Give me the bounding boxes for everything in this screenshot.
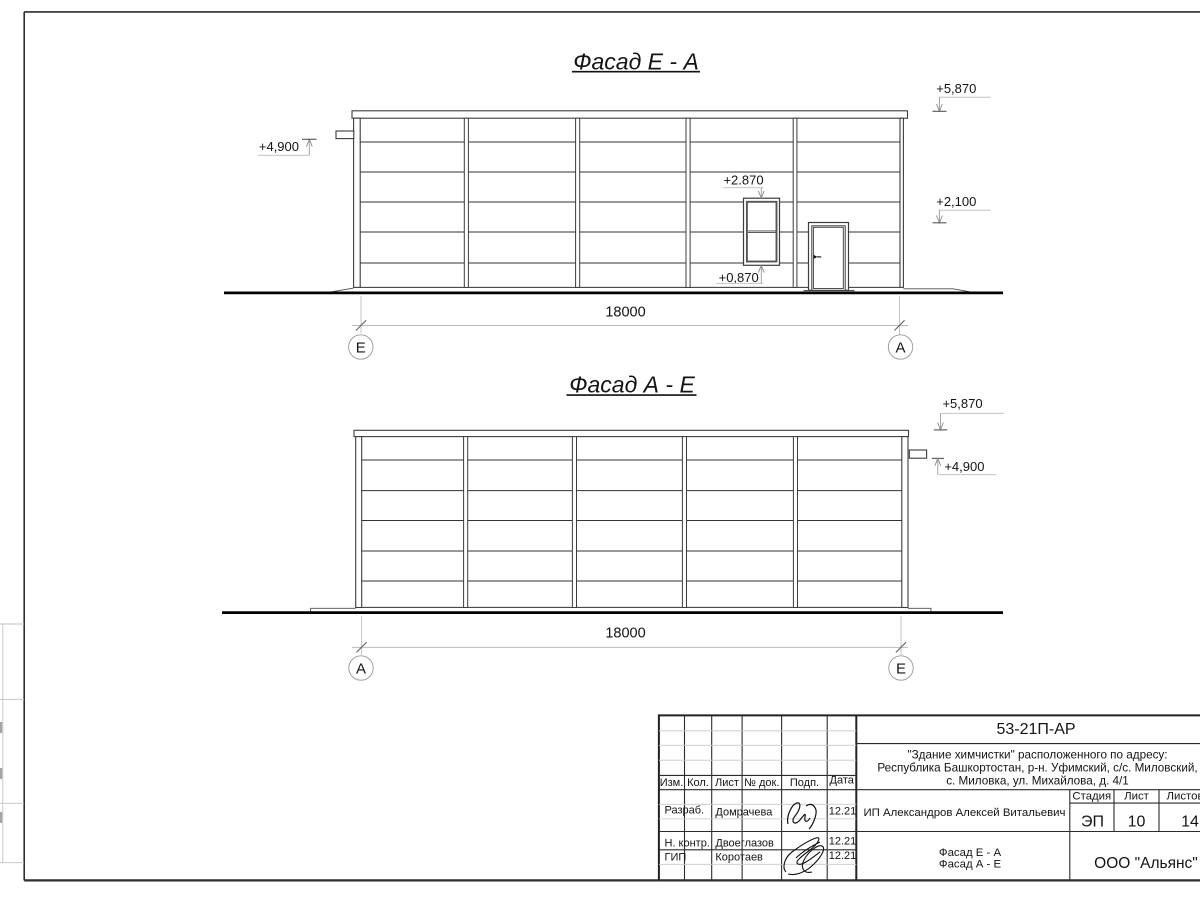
svg-text:+5,870: +5,870 [936, 81, 976, 96]
svg-text:Стадия: Стадия [1072, 791, 1111, 803]
svg-text:+2.870: +2.870 [723, 172, 763, 187]
svg-text:Подп.: Подп. [790, 777, 819, 789]
svg-text:+4,900: +4,900 [944, 459, 984, 474]
svg-text:ИП Александров Алексей Виталье: ИП Александров Алексей Витальевич [864, 807, 1066, 819]
svg-text:Изм.: Изм. [660, 777, 684, 789]
svg-text:+5,870: +5,870 [942, 396, 982, 411]
svg-text:Фасад А - Е: Фасад А - Е [569, 371, 695, 397]
svg-text:Фасад А - Е: Фасад А - Е [939, 859, 1002, 871]
svg-text:18000: 18000 [605, 626, 645, 642]
svg-text:Фасад Е - А: Фасад Е - А [573, 49, 699, 75]
svg-text:ООО "Альянс": ООО "Альянс" [1094, 855, 1198, 872]
svg-text:Лист: Лист [1124, 791, 1150, 803]
svg-text:А: А [356, 660, 366, 677]
svg-text:"Здание химчистки" расположенн: "Здание химчистки" расположенного по адр… [907, 749, 1167, 762]
svg-text:Коротаев: Коротаев [715, 852, 763, 864]
svg-text:10: 10 [1128, 814, 1146, 831]
svg-text:Разраб.: Разраб. [665, 805, 705, 817]
svg-text:18000: 18000 [605, 305, 645, 321]
svg-text:12.21: 12.21 [829, 850, 857, 862]
svg-text:А: А [895, 339, 905, 356]
svg-text:Н. контр.: Н. контр. [665, 838, 710, 850]
svg-text:Фасад Е - А: Фасад Е - А [939, 847, 1002, 859]
svg-text:Дата: Дата [830, 775, 855, 787]
svg-text:Двоеглазов: Двоеглазов [715, 838, 774, 850]
svg-text:+2,100: +2,100 [936, 194, 976, 209]
svg-text:с. Миловка, ул. Михайлова, д.: с. Миловка, ул. Михайлова, д. 4/1 [946, 775, 1129, 788]
svg-text:+4,900: +4,900 [259, 139, 299, 154]
svg-text:+0,870: +0,870 [719, 270, 759, 285]
svg-text:Листов: Листов [1166, 791, 1200, 803]
svg-text:53-21П-АР: 53-21П-АР [996, 721, 1075, 738]
svg-text:Е: Е [356, 339, 366, 356]
svg-text:Домрачева: Домрачева [715, 807, 773, 819]
svg-text:12.21: 12.21 [829, 836, 857, 848]
svg-text:Республика Башкортостан, р-н.: Республика Башкортостан, р-н. Уфимский, … [877, 761, 1197, 774]
svg-text:№ док.: № док. [744, 777, 779, 789]
svg-text:ГИП: ГИП [665, 852, 687, 864]
svg-text:ЭП: ЭП [1081, 814, 1104, 831]
svg-text:Лист: Лист [715, 777, 739, 789]
svg-text:Е: Е [896, 660, 906, 677]
svg-text:12.21: 12.21 [829, 806, 857, 818]
svg-text:14: 14 [1181, 814, 1199, 831]
svg-text:Кол.: Кол. [687, 777, 709, 789]
